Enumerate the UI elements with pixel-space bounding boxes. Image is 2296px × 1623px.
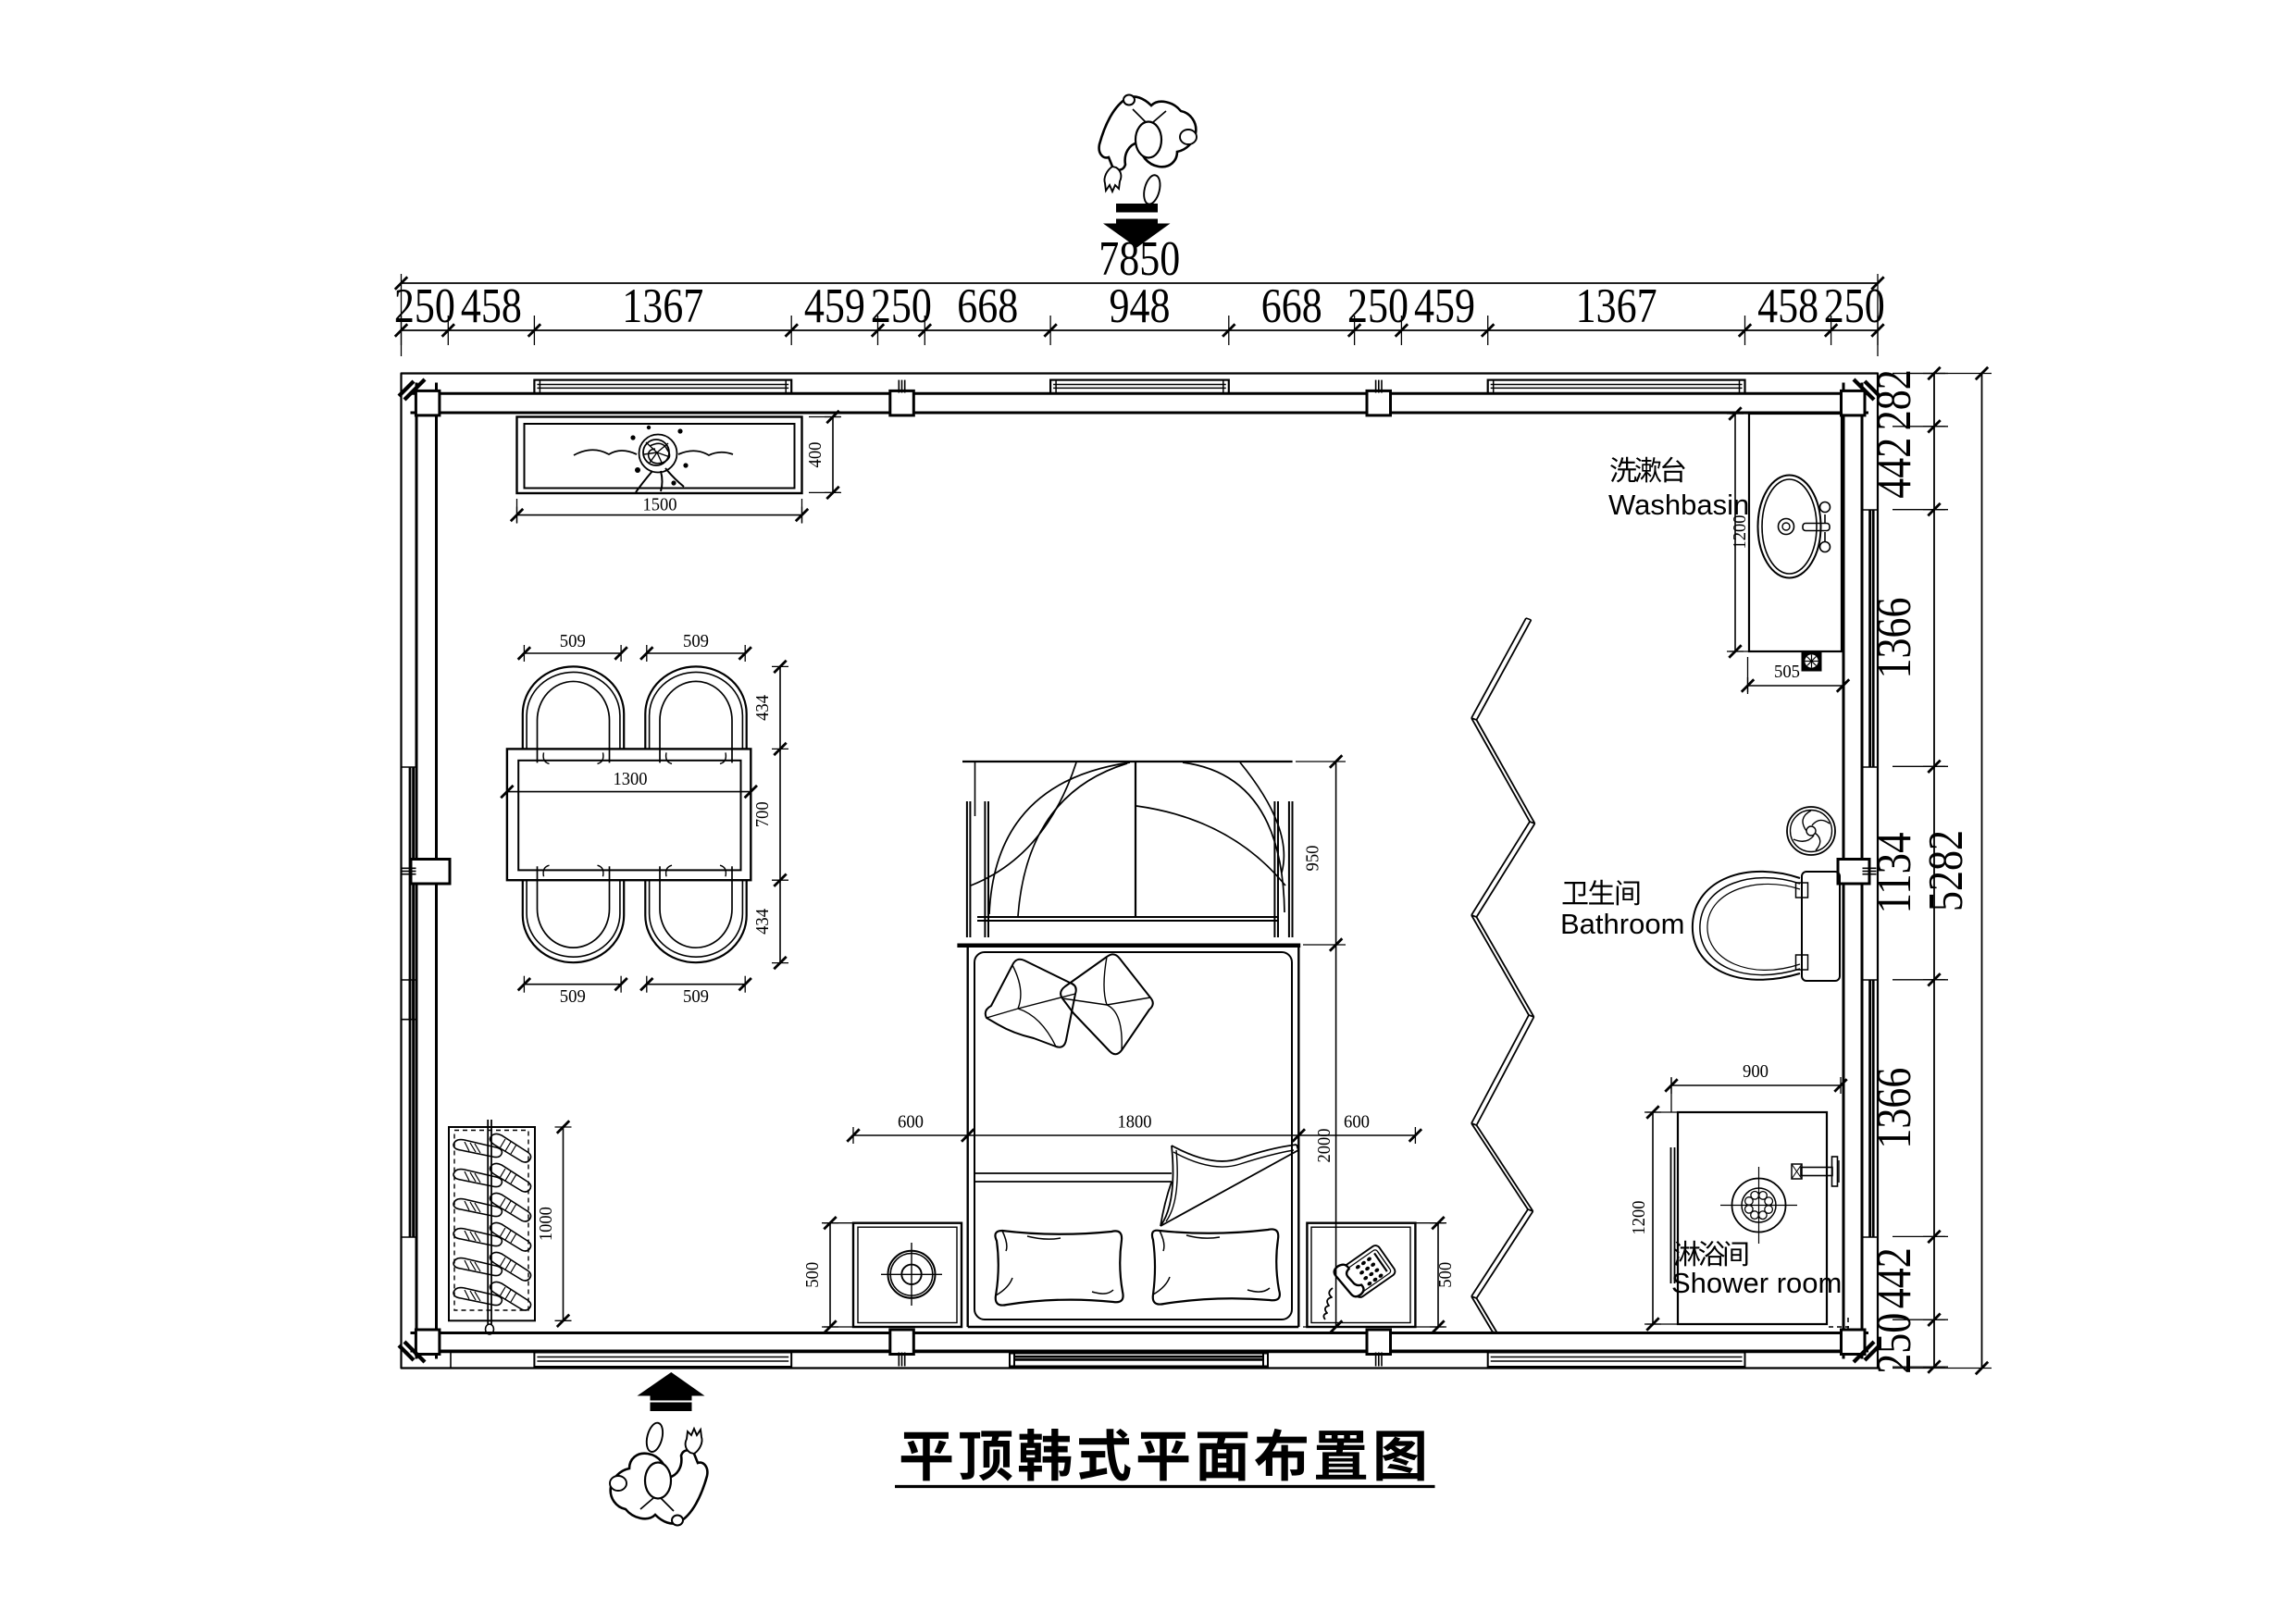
svg-text:434: 434 [752, 695, 773, 721]
svg-text:668: 668 [957, 279, 1018, 333]
svg-text:Bathroom: Bathroom [1560, 908, 1684, 940]
svg-text:1500: 1500 [643, 495, 677, 515]
svg-text:500: 500 [802, 1262, 823, 1288]
svg-text:1367: 1367 [1576, 279, 1657, 333]
svg-text:458: 458 [461, 279, 522, 333]
svg-text:1800: 1800 [1118, 1112, 1152, 1133]
svg-text:509: 509 [560, 631, 586, 651]
svg-text:250: 250 [1824, 279, 1885, 333]
svg-text:458: 458 [1757, 279, 1818, 333]
svg-text:442: 442 [1868, 438, 1921, 499]
svg-text:459: 459 [1414, 279, 1475, 333]
svg-text:250: 250 [394, 279, 455, 333]
svg-text:948: 948 [1110, 279, 1171, 333]
svg-text:Shower room: Shower room [1671, 1267, 1842, 1299]
svg-text:509: 509 [683, 631, 709, 651]
svg-text:600: 600 [1344, 1112, 1370, 1133]
svg-text:Washbasin: Washbasin [1608, 489, 1749, 521]
svg-text:2000: 2000 [1314, 1129, 1334, 1163]
svg-text:1200: 1200 [1629, 1201, 1649, 1235]
svg-text:1366: 1366 [1868, 1068, 1921, 1149]
svg-text:400: 400 [805, 442, 825, 468]
svg-text:509: 509 [683, 986, 709, 1007]
svg-text:505: 505 [1774, 662, 1800, 682]
svg-text:600: 600 [898, 1112, 924, 1133]
svg-text:1000: 1000 [536, 1207, 556, 1241]
svg-text:700: 700 [752, 801, 773, 827]
svg-text:500: 500 [1435, 1262, 1456, 1288]
svg-text:459: 459 [804, 279, 865, 333]
svg-text:434: 434 [752, 909, 773, 935]
svg-text:250: 250 [1868, 1313, 1921, 1374]
svg-text:1367: 1367 [622, 279, 703, 333]
svg-text:5282: 5282 [1919, 830, 1973, 911]
svg-text:668: 668 [1261, 279, 1322, 333]
svg-text:250: 250 [871, 279, 932, 333]
svg-text:509: 509 [560, 986, 586, 1007]
svg-text:950: 950 [1303, 846, 1323, 872]
svg-text:1300: 1300 [614, 769, 648, 789]
svg-text:1366: 1366 [1868, 598, 1921, 679]
svg-text:900: 900 [1743, 1061, 1769, 1082]
svg-text:250: 250 [1347, 279, 1409, 333]
svg-text:1134: 1134 [1868, 833, 1921, 914]
svg-text:282: 282 [1868, 369, 1921, 430]
svg-text:442: 442 [1868, 1247, 1921, 1308]
